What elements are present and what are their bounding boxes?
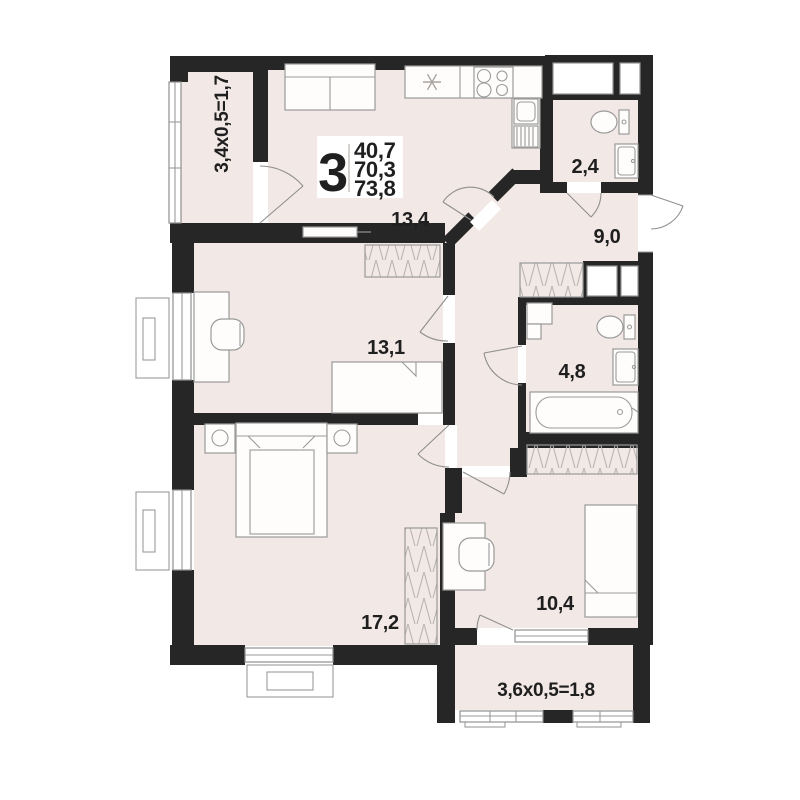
bedroom2-window-bottom <box>245 648 333 697</box>
bathroom-door-opening <box>518 345 526 383</box>
dish-rack <box>514 126 538 147</box>
nightstand-left <box>205 424 235 453</box>
bathtub <box>530 392 638 433</box>
sofa <box>285 64 375 110</box>
kitchen-living-label: 13,4 <box>391 209 430 231</box>
washbasin <box>615 144 638 178</box>
bedroom2-window-left <box>136 490 191 570</box>
hall-wardrobe <box>520 263 583 297</box>
chair <box>459 538 494 571</box>
entrance-door-opening <box>638 195 653 252</box>
chair <box>211 319 244 350</box>
total-area: 73,8 <box>354 176 396 201</box>
bedroom2-label: 17,2 <box>361 612 399 634</box>
balcony-glazing <box>169 82 181 223</box>
loggia-label: 3,6x0,5=1,8 <box>497 680 595 701</box>
double-bed <box>236 423 327 537</box>
wc-door-opening <box>567 182 601 193</box>
title-block: 3 40,7 70,3 73,8 <box>317 136 403 203</box>
floor-plan-drawing: 3 40,7 70,3 73,8 13,4 2,4 9,0 4,8 13,1 1… <box>0 0 800 800</box>
exterior-box <box>136 298 169 378</box>
hallway-label: 9,0 <box>594 226 621 248</box>
single-bed <box>585 505 637 617</box>
bedroom2-doorway <box>445 425 457 468</box>
entrance-door <box>651 195 683 229</box>
bedroom1-window <box>136 293 191 380</box>
stove-icon <box>474 67 513 98</box>
exterior-box <box>247 665 333 697</box>
toilet-icon <box>591 110 629 134</box>
nightstand-right <box>327 424 357 453</box>
wc-label: 2,4 <box>572 156 600 178</box>
washbasin <box>613 349 638 385</box>
kitchen-sink <box>514 99 538 124</box>
bedroom3-loggia-window <box>515 630 588 642</box>
bedroom2-door-opening <box>418 413 443 425</box>
exterior-box <box>136 492 169 570</box>
floor-plan-page: 3 40,7 70,3 73,8 13,4 2,4 9,0 4,8 13,1 1… <box>0 0 800 800</box>
bedroom3-label: 10,4 <box>536 593 575 615</box>
loggia-door-opening <box>477 628 515 645</box>
furniture-hallway <box>520 263 583 297</box>
balcony-door-opening <box>253 162 268 223</box>
wardrobe <box>405 528 437 644</box>
toilet-icon <box>597 315 635 339</box>
balcony-label: 3,4x0,5=1,7 <box>212 75 233 173</box>
bedroom1-door-opening <box>443 295 455 343</box>
wardrobe <box>527 445 637 474</box>
wardrobe <box>365 245 440 277</box>
rooms-count: 3 <box>318 143 348 203</box>
single-bed <box>332 362 442 413</box>
bedroom1-label: 13,1 <box>367 337 405 359</box>
bathroom-label: 4,8 <box>559 361 586 383</box>
